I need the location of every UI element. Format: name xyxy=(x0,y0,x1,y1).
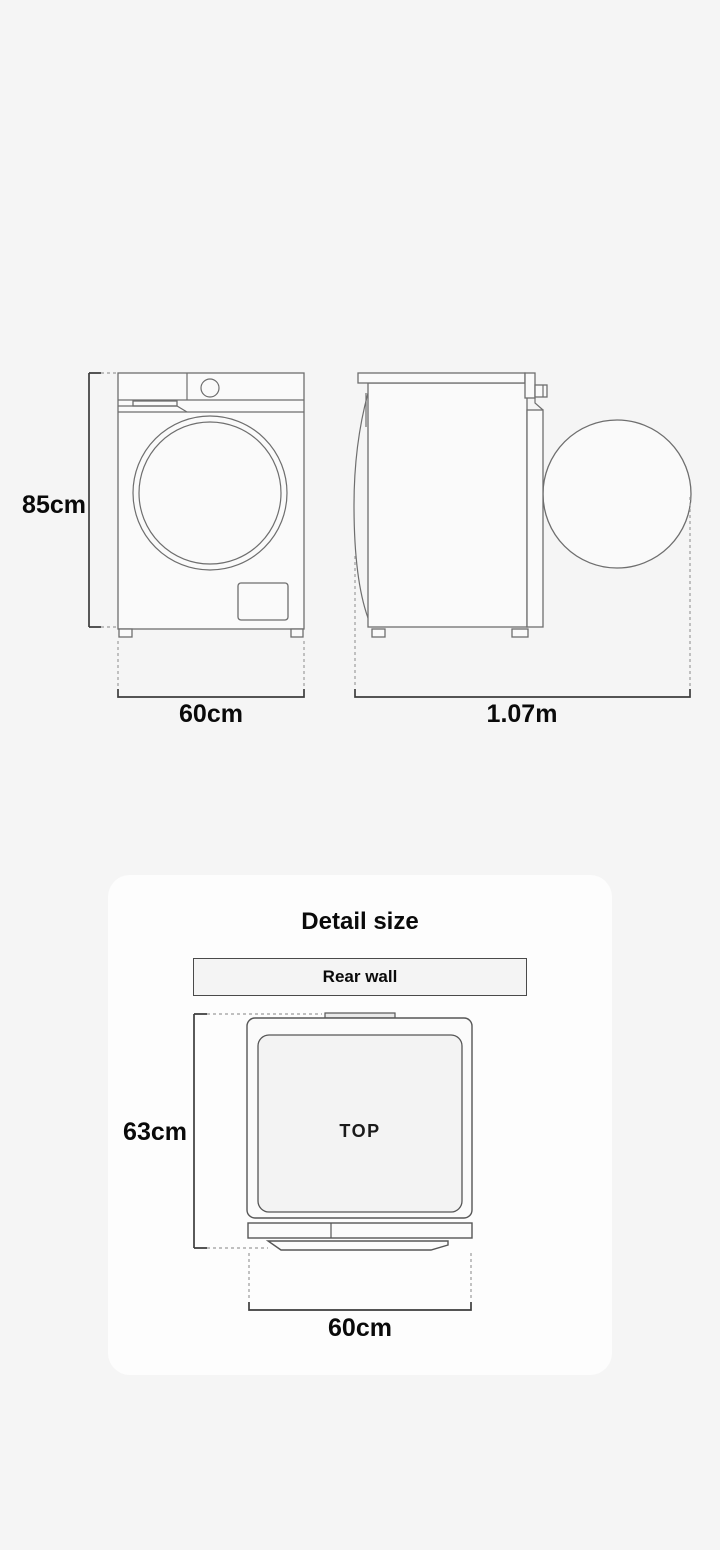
front-width-measure-line xyxy=(118,689,304,697)
front-body-outline xyxy=(118,373,304,629)
top-face-label: TOP xyxy=(310,1121,410,1141)
side-rear-cover-curve xyxy=(354,393,368,618)
front-height-bracket-ticks xyxy=(89,373,101,627)
side-left-foot xyxy=(372,629,385,637)
front-filter-door xyxy=(238,583,288,620)
side-front-frame-top xyxy=(525,373,535,398)
rear-wall-label: Rear wall xyxy=(323,967,398,987)
top-width-label: 60cm xyxy=(295,1315,425,1341)
front-height-extension-dashes xyxy=(101,373,118,627)
side-depth-extension-dashes xyxy=(355,497,690,688)
front-right-foot xyxy=(291,629,303,637)
front-door-inner-ring xyxy=(139,422,281,564)
side-depth-label: 1.07m xyxy=(457,701,587,727)
front-dial-icon xyxy=(201,379,219,397)
side-open-door-circle xyxy=(543,420,691,568)
side-body-outline xyxy=(368,383,527,627)
front-door-outer-ring xyxy=(133,416,287,570)
side-front-notch xyxy=(535,398,543,410)
front-left-foot xyxy=(119,629,132,637)
front-width-extension-dashes xyxy=(118,641,304,688)
washer-dimensions-page: 85cm 60cm 1.07m Detail size Rear wall TO… xyxy=(0,0,720,1550)
rear-wall-box: Rear wall xyxy=(193,958,527,996)
side-depth-measure-line xyxy=(355,689,690,697)
top-depth-label: 63cm xyxy=(118,1119,187,1145)
side-front-panel xyxy=(527,410,543,627)
front-drawer-lip-line xyxy=(118,406,187,412)
side-right-foot xyxy=(512,629,528,637)
front-width-label: 60cm xyxy=(146,701,276,727)
side-top-lip xyxy=(358,373,525,383)
side-control-ledge xyxy=(535,385,547,397)
detail-size-title: Detail size xyxy=(108,908,612,936)
front-detergent-drawer-handle xyxy=(133,401,177,406)
front-height-label: 85cm xyxy=(18,492,86,518)
washer-side-view-diagram xyxy=(354,373,691,697)
washer-front-view-diagram xyxy=(89,373,304,697)
